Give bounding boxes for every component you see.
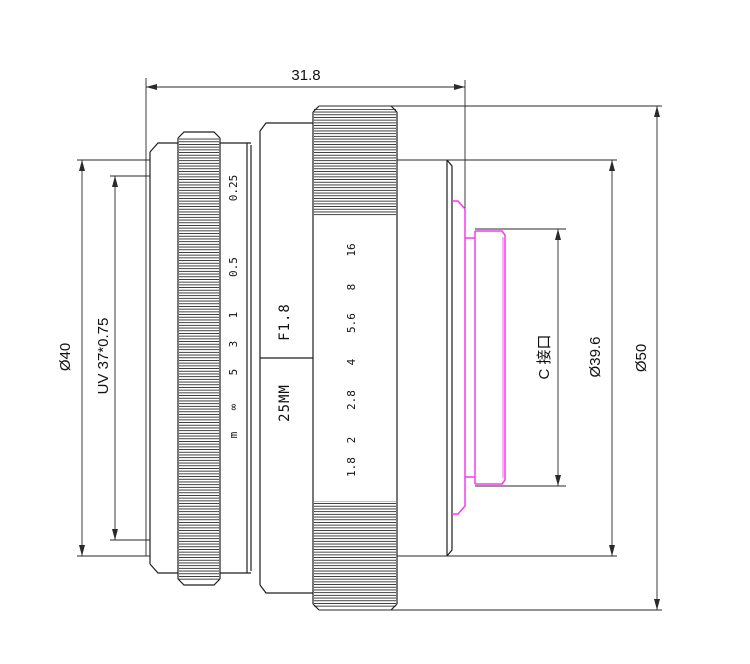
aperture-ring-knurl-bottom [314,501,396,607]
c-mount-outline [452,201,505,514]
mount-thread [475,231,505,484]
aperture-scale-mark: 5.6 [345,313,358,333]
focus-scale-ring [220,143,251,573]
focus-ring-knurl [179,137,219,580]
front-diameter-dimension [77,160,150,556]
aperture-scale-mark: 2 [345,437,358,444]
aperture-scale-mark: 2.8 [345,390,358,410]
aperture-ring-knurl-top [314,109,396,216]
aperture-spec-label: F1.8 [277,303,293,341]
aperture-scale-mark: 8 [345,284,358,291]
c-mount-label: C 接口 [536,334,553,379]
aperture-scale-mark: 1.8 [345,457,358,477]
filter-thread-label: UV 37*0.75 [95,318,112,395]
lens-technical-drawing: 31.8 Ø40 UV 37*0.75 C 接口 Ø39.6 Ø50 F1.8 … [0,0,750,664]
length-dimension-label: 31.8 [291,67,320,84]
focus-scale-mark: 5 [227,369,240,376]
mount-collar [452,201,465,514]
focus-distance-scale: 0.25 0.5 1 3 5 ∞ m [227,175,240,439]
front-diameter-label: Ø40 [57,343,74,371]
aperture-scale-mark: 4 [345,358,358,365]
aperture-scale-mark: 16 [345,243,358,256]
focus-scale-mark: 0.5 [227,257,240,277]
mount-relief-groove [465,238,475,477]
name-ring [260,123,313,593]
lens-spec-labels: F1.8 25MM [277,303,293,422]
focal-length-label: 25MM [277,384,293,422]
focus-scale-mark: ∞ [227,403,240,410]
rear-diameter-label: Ø39.6 [587,337,604,378]
rear-barrel-flange [447,160,452,556]
outer-diameter-label: Ø50 [633,344,650,372]
focus-scale-mark: 3 [227,341,240,348]
drawing-canvas: 31.8 Ø40 UV 37*0.75 C 接口 Ø39.6 Ø50 F1.8 … [0,0,750,664]
focus-scale-mark: m [227,431,240,438]
focus-scale-mark: 1 [227,312,240,319]
aperture-scale: 16 8 5.6 4 2.8 2 1.8 [345,243,358,477]
filter-thread-dimension [110,176,150,540]
rear-diameter-dimension [397,160,617,556]
focus-scale-mark: 0.25 [227,175,240,202]
front-barrel [150,143,178,573]
